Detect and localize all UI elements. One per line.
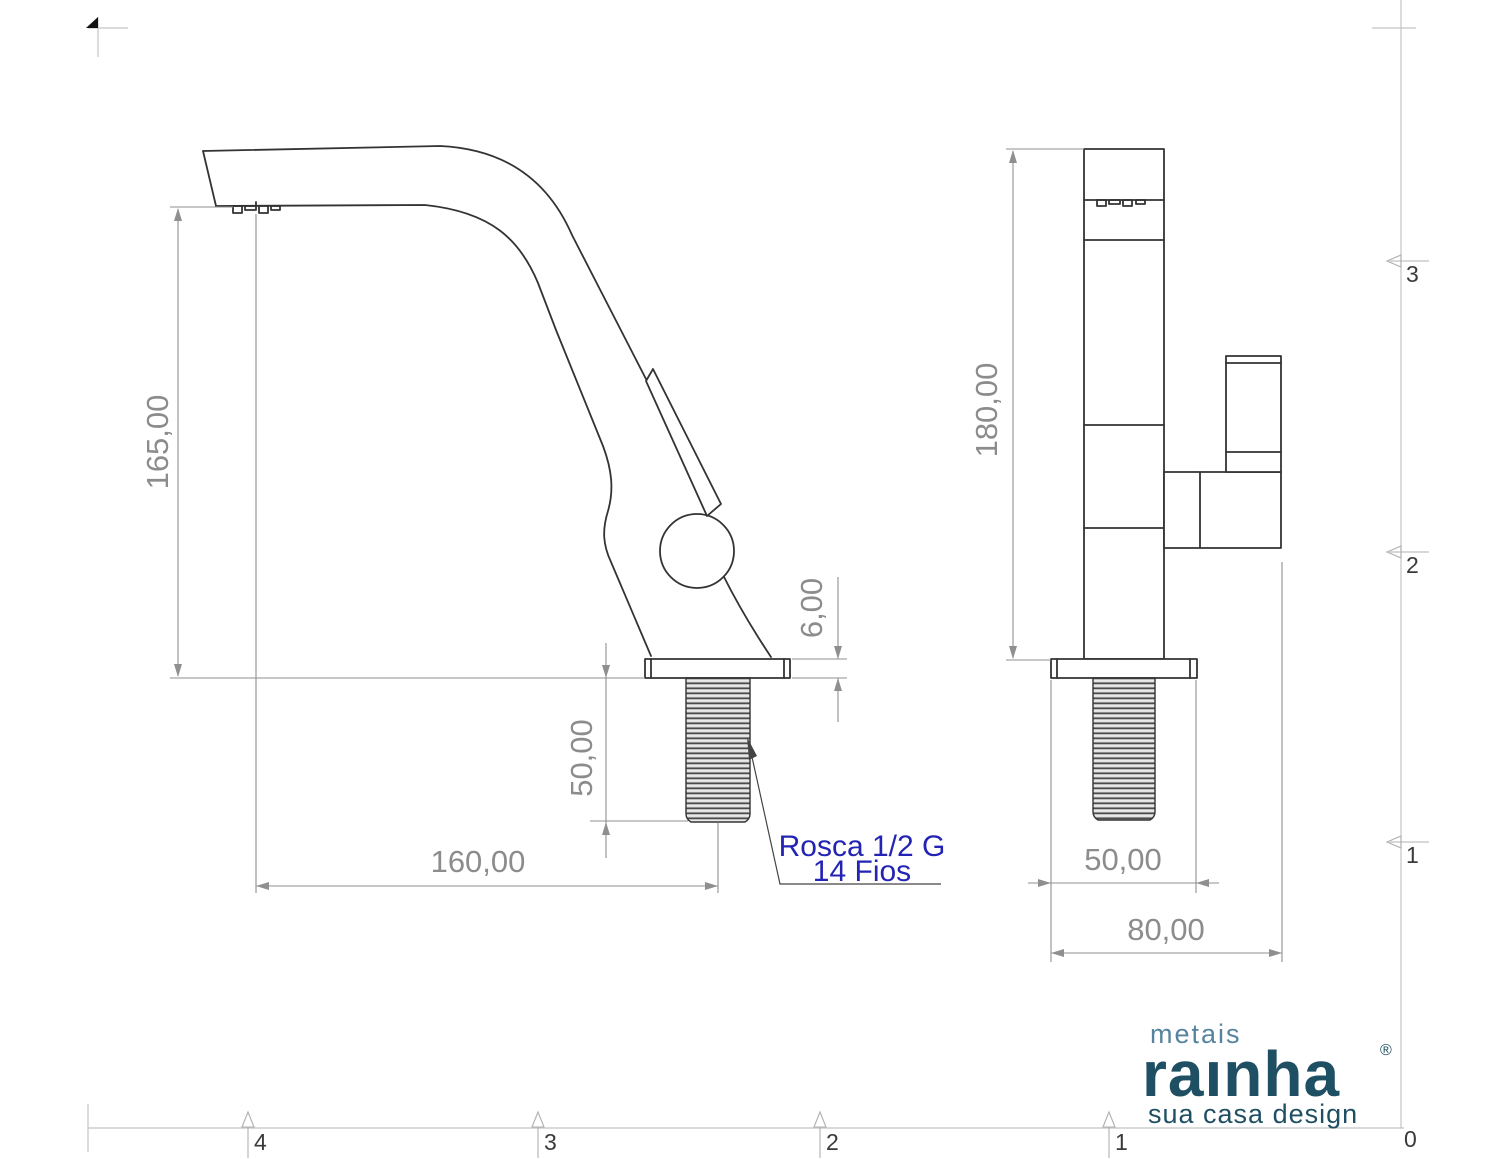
- threaded-shank-front: [1093, 678, 1155, 820]
- zone-label-bottom-4: 4: [254, 1129, 267, 1155]
- side-view-faucet: [203, 146, 790, 822]
- dim-label-50-front: 50,00: [1084, 842, 1162, 877]
- zone-label-origin: 0: [1404, 1126, 1417, 1152]
- drawing-sheet: 4 3 2 1 3 2 1 0: [0, 0, 1500, 1159]
- body-lower-right-edge: [723, 575, 771, 657]
- front-view-faucet: [1051, 149, 1281, 820]
- zone-label-bottom-3: 3: [544, 1129, 557, 1155]
- base-flange-side: [645, 659, 790, 678]
- aerator-detail: [233, 202, 280, 213]
- zone-tick-arrow: [814, 1112, 826, 1127]
- body-inner-edge: [216, 205, 651, 656]
- handle-lever: [646, 369, 721, 516]
- base-flange-front: [1051, 659, 1197, 678]
- zone-label-right-1: 1: [1406, 842, 1419, 868]
- handle-joint-block: [1164, 472, 1281, 548]
- handle-grip: [1226, 356, 1281, 472]
- column-body: [1084, 149, 1164, 659]
- dim-label-50-side: 50,00: [564, 719, 599, 797]
- body-outer-edge: [203, 146, 647, 381]
- dim-base-width-80: 80,00: [1051, 562, 1282, 962]
- dim-label-180: 180,00: [969, 363, 1004, 458]
- zone-tick-arrow: [242, 1112, 254, 1127]
- dim-label-160: 160,00: [431, 844, 526, 879]
- dimensions-front-view: 180,00 50,00 80,00: [969, 149, 1282, 962]
- zone-label-right-3: 3: [1406, 261, 1419, 287]
- handle-front: [1164, 356, 1281, 548]
- dim-label-165: 165,00: [140, 395, 175, 490]
- technical-drawing-canvas: 4 3 2 1 3 2 1 0: [0, 0, 1500, 1159]
- dim-height-180: 180,00: [969, 149, 1084, 660]
- dim-flange-6: 6,00: [792, 577, 847, 722]
- dim-height-165: 165,00: [140, 207, 645, 678]
- zone-label-right-2: 2: [1406, 552, 1419, 578]
- zone-label-bottom-2: 2: [826, 1129, 839, 1155]
- handle-ball-joint: [660, 514, 734, 588]
- frame-corner-trim-mark: [86, 17, 98, 28]
- logo-registered-mark: ®: [1380, 1042, 1392, 1059]
- dim-label-80: 80,00: [1127, 912, 1205, 947]
- drawing-frame: 4 3 2 1 3 2 1 0: [86, 0, 1429, 1158]
- thread-spec-note: Rosca 1/2 G 14 Fios: [747, 737, 945, 888]
- dim-label-6: 6,00: [794, 578, 829, 638]
- zone-tick-arrow: [532, 1112, 544, 1127]
- dimensions-side-view: 165,00 160,00 50,00 6,00: [140, 207, 945, 893]
- dim-reach-160: 160,00: [256, 214, 718, 893]
- zone-label-bottom-1: 1: [1115, 1129, 1128, 1155]
- spout-end-cut: [203, 151, 216, 206]
- brand-logo: metais raınha ® sua casa design: [1142, 1019, 1392, 1129]
- threaded-shank-side: [686, 678, 750, 822]
- logo-tagline: sua casa design: [1148, 1099, 1358, 1129]
- zone-tick-arrow: [1103, 1112, 1115, 1127]
- bottom-zone-ticks: [242, 1112, 1115, 1158]
- note-line-2: 14 Fios: [813, 855, 911, 888]
